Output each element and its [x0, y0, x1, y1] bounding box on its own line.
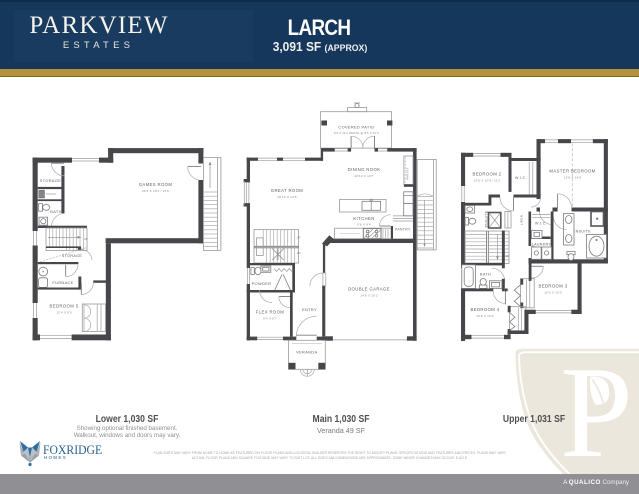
svg-text:10'8 X 10'0: 10'8 X 10'0: [476, 314, 494, 318]
svg-text:LAUNDRY: LAUNDRY: [532, 243, 552, 247]
svg-text:PANTRY: PANTRY: [406, 167, 410, 180]
svg-text:FURNACE: FURNACE: [52, 280, 73, 285]
svg-text:10'0 X 10'0: 10'0 X 10'0: [544, 291, 562, 295]
svg-text:9'4 X 8'7: 9'4 X 8'7: [263, 317, 277, 321]
svg-text:BATH: BATH: [50, 209, 62, 214]
svg-text:DN: DN: [506, 255, 510, 258]
svg-text:UP: UP: [84, 237, 88, 241]
svg-text:DN: DN: [297, 252, 301, 255]
svg-text:14'6 X 20'2: 14'6 X 20'2: [360, 294, 378, 298]
svg-text:BEDROOM 2: BEDROOM 2: [473, 172, 502, 177]
svg-text:DOUBLE GARAGE: DOUBLE GARAGE: [348, 287, 390, 292]
svg-text:26'4 X 18'1 ∕ 13'6: 26'4 X 18'1 ∕ 13'6: [142, 189, 169, 193]
svg-text:KITCHEN: KITCHEN: [353, 216, 374, 221]
svg-text:8'6 X 11'4 DEPTH @ 8'6 X 10'3: 8'6 X 11'4 DEPTH @ 8'6 X 10'3: [334, 131, 379, 135]
svg-text:PANTRY: PANTRY: [395, 228, 411, 232]
svg-text:W.I.C.: W.I.C.: [535, 222, 547, 226]
svg-text:STORAGE: STORAGE: [62, 254, 83, 258]
svg-text:BEDROOM 3: BEDROOM 3: [539, 284, 568, 289]
svg-text:W.I.C.: W.I.C.: [515, 176, 527, 180]
svg-text:GREAT ROOM: GREAT ROOM: [271, 188, 304, 193]
svg-text:STORAGE: STORAGE: [40, 178, 61, 183]
svg-text:DINING NOOK: DINING NOOK: [348, 167, 381, 172]
svg-text:ENTRY: ENTRY: [302, 307, 317, 312]
svg-text:FLEX ROOM: FLEX ROOM: [256, 310, 285, 315]
svg-text:BATH: BATH: [480, 272, 491, 276]
svg-text:MASTER BEDROOM: MASTER BEDROOM: [549, 169, 595, 174]
svg-text:POWDER: POWDER: [252, 281, 272, 286]
svg-text:GAMES ROOM: GAMES ROOM: [139, 182, 173, 187]
svg-text:BEDROOM 5: BEDROOM 5: [50, 304, 79, 309]
svg-text:UP: UP: [297, 237, 301, 240]
svg-text:ENSUITE: ENSUITE: [573, 230, 591, 234]
svg-text:18'10 X 14'5: 18'10 X 14'5: [277, 195, 296, 199]
svg-text:12'8 X 14'8: 12'8 X 14'8: [564, 176, 582, 180]
svg-text:10'6 X 10'6 ∕ 11'2: 10'6 X 10'6 ∕ 11'2: [474, 179, 501, 183]
svg-text:COVERED PATIO: COVERED PATIO: [338, 125, 374, 130]
svg-text:9'6 X 9'4: 9'6 X 9'4: [357, 223, 371, 227]
svg-text:12'4 X 9'9: 12'4 X 9'9: [56, 311, 72, 315]
svg-text:10'10 X 10'7: 10'10 X 10'7: [354, 174, 373, 178]
svg-text:VERANDA: VERANDA: [296, 349, 317, 354]
svg-text:LINEN: LINEN: [520, 215, 524, 226]
svg-text:BEDROOM 4: BEDROOM 4: [471, 307, 500, 312]
